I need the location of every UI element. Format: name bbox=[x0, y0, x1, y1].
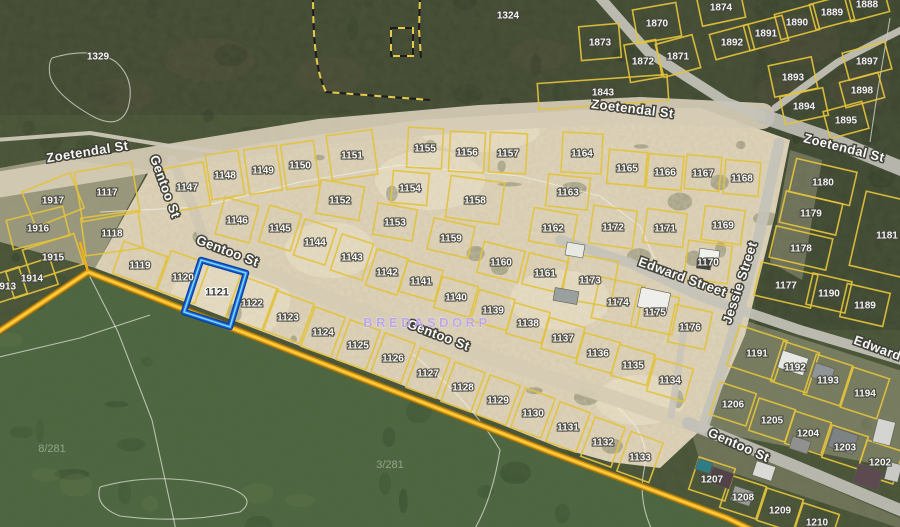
parcel-number-label[interactable]: 1145 bbox=[269, 224, 291, 235]
parcel-number-label[interactable]: 1138 bbox=[517, 319, 539, 330]
parcel-number-label[interactable]: 1123 bbox=[277, 313, 299, 324]
parcel-number-label[interactable]: 1154 bbox=[399, 184, 421, 195]
parcel-number-label[interactable]: 1897 bbox=[856, 57, 879, 68]
parcel-number-label[interactable]: 1148 bbox=[214, 171, 236, 182]
parcel-number-label[interactable]: 1151 bbox=[341, 151, 363, 162]
parcel-number-label[interactable]: 1898 bbox=[851, 86, 874, 97]
parcel-number-label[interactable]: 1178 bbox=[790, 244, 812, 255]
parcel-number-label[interactable]: 1130 bbox=[522, 409, 544, 420]
parcel-number-label[interactable]: 1914 bbox=[21, 274, 44, 285]
parcel-number-label[interactable]: 1173 bbox=[579, 276, 601, 287]
parcel-number-label[interactable]: 1891 bbox=[755, 29, 778, 40]
parcel-number-label[interactable]: 1122 bbox=[241, 299, 263, 310]
parcel-number-label[interactable]: 1160 bbox=[490, 258, 512, 269]
parcel-number-label[interactable]: 1127 bbox=[417, 369, 439, 380]
parcel-number-label[interactable]: 1137 bbox=[552, 334, 574, 345]
parcel-number-label[interactable]: 1872 bbox=[632, 57, 655, 68]
parcel-number-label[interactable]: 1205 bbox=[761, 416, 784, 427]
parcel-number-label[interactable]: 1165 bbox=[616, 164, 638, 175]
parcel-number-label[interactable]: 1126 bbox=[382, 354, 404, 365]
parcel-number-label[interactable]: 1895 bbox=[835, 116, 858, 127]
parcel-number-label[interactable]: 1208 bbox=[732, 493, 755, 504]
parcel-number-label[interactable]: 1144 bbox=[304, 238, 326, 249]
parcel-number-label[interactable]: 1159 bbox=[440, 234, 462, 245]
parcel-number-label[interactable]: 1917 bbox=[42, 196, 65, 207]
place-label-bredasdorp: BREDASDORP bbox=[363, 315, 490, 330]
parcel-number-label[interactable]: 1162 bbox=[542, 224, 564, 235]
parcel-number-label[interactable]: 1166 bbox=[654, 168, 676, 179]
parcel-number-label[interactable]: 1190 bbox=[818, 289, 840, 300]
parcel-number-label[interactable]: 1117 bbox=[96, 188, 118, 199]
parcel-number-label[interactable]: 1140 bbox=[445, 293, 467, 304]
parcel-number-label[interactable]: 1167 bbox=[692, 169, 714, 180]
parcel-number-label[interactable]: 1142 bbox=[376, 268, 398, 279]
parcel-number-label[interactable]: 1134 bbox=[659, 376, 681, 387]
parcel-number-label[interactable]: 1871 bbox=[667, 52, 690, 63]
parcel-number-label[interactable]: 1209 bbox=[769, 506, 792, 517]
parcel-number-label[interactable]: 1143 bbox=[341, 253, 363, 264]
parcel-number-label[interactable]: 1189 bbox=[854, 301, 876, 312]
parcel-number-label[interactable]: 1870 bbox=[646, 19, 669, 30]
parcel-number-label[interactable]: 1329 bbox=[87, 52, 110, 63]
parcel-number-label[interactable]: 1170 bbox=[697, 258, 719, 269]
farm-portion-label: 3/281 bbox=[376, 459, 404, 471]
parcel-number-label[interactable]: 1161 bbox=[534, 269, 556, 280]
parcel-number-label[interactable]: 1147 bbox=[176, 183, 198, 194]
parcel-number-label[interactable]: 1888 bbox=[856, 0, 879, 11]
parcel-number-label[interactable]: 1202 bbox=[869, 458, 892, 469]
parcel-number-label[interactable]: 1174 bbox=[607, 298, 629, 309]
parcel-number-label[interactable]: 1180 bbox=[812, 178, 834, 189]
parcel-number-label[interactable]: 1156 bbox=[456, 148, 478, 159]
building bbox=[565, 242, 585, 258]
parcel-number-label[interactable]: 1913 bbox=[0, 282, 17, 293]
parcel-number-label[interactable]: 1164 bbox=[571, 149, 593, 160]
parcel-number-label[interactable]: 1168 bbox=[731, 174, 753, 185]
parcel-number-label[interactable]: 1169 bbox=[712, 221, 734, 232]
parcel-number-label[interactable]: 1128 bbox=[452, 383, 474, 394]
parcel-number-label[interactable]: 1207 bbox=[701, 475, 724, 486]
parcel-number-label[interactable]: 1191 bbox=[746, 349, 768, 360]
parcel-number-label[interactable]: 1916 bbox=[27, 224, 50, 235]
parcel-number-label[interactable]: 1135 bbox=[622, 361, 644, 372]
parcel-number-label[interactable]: 1129 bbox=[487, 396, 509, 407]
building-roof bbox=[565, 242, 585, 258]
parcel-number-label[interactable]: 1206 bbox=[722, 400, 745, 411]
parcel-number-label[interactable]: 1889 bbox=[821, 8, 844, 19]
parcel-number-label[interactable]: 1193 bbox=[817, 376, 839, 387]
parcel-number-label[interactable]: 1133 bbox=[629, 453, 651, 464]
parcel-number-label[interactable]: 1915 bbox=[42, 253, 65, 264]
parcel-number-label[interactable]: 1124 bbox=[312, 328, 334, 339]
parcel-number-label[interactable]: 1194 bbox=[854, 389, 876, 400]
parcel-number-label[interactable]: 1146 bbox=[226, 216, 248, 227]
parcel-number-label[interactable]: 1873 bbox=[589, 38, 612, 49]
satellite-parcel-map[interactable]: 1329132418701873187418711872189218911890… bbox=[0, 0, 900, 527]
parcel-number-label[interactable]: 1894 bbox=[793, 102, 816, 113]
parcel-number-label[interactable]: 1153 bbox=[384, 218, 406, 229]
parcel-number-label[interactable]: 1171 bbox=[654, 224, 676, 235]
parcel-number-label[interactable]: 1210 bbox=[806, 518, 829, 527]
parcel-number-label[interactable]: 1172 bbox=[602, 223, 624, 234]
parcel-number-label[interactable]: 1892 bbox=[721, 38, 744, 49]
parcel-number-label[interactable]: 1179 bbox=[800, 209, 822, 220]
parcel-number-label[interactable]: 1120 bbox=[172, 273, 194, 284]
parcel-number-label[interactable]: 1324 bbox=[497, 11, 520, 22]
parcel-number-label[interactable]: 1163 bbox=[557, 188, 579, 199]
parcel-number-label[interactable]: 1204 bbox=[797, 429, 820, 440]
parcel-number-label[interactable]: 1119 bbox=[129, 261, 151, 272]
cadastral-map-canvas[interactable]: 1329132418701873187418711872189218911890… bbox=[0, 0, 900, 527]
parcel-number-label[interactable]: 1158 bbox=[464, 196, 486, 207]
farm-portion-label: 8/281 bbox=[38, 443, 66, 455]
parcel-number-label[interactable]: 1874 bbox=[710, 3, 733, 14]
parcel-number-label[interactable]: 1152 bbox=[329, 196, 351, 207]
parcel-number-label[interactable]: 1141 bbox=[410, 277, 432, 288]
parcel-number-label[interactable]: 1121 bbox=[205, 287, 229, 299]
parcel-number-label[interactable]: 1157 bbox=[497, 149, 519, 160]
parcel-number-label[interactable]: 1149 bbox=[252, 166, 274, 177]
parcel-number-label[interactable]: 1175 bbox=[644, 308, 666, 319]
parcel-number-label[interactable]: 1150 bbox=[289, 161, 311, 172]
parcel-number-label[interactable]: 1893 bbox=[782, 73, 805, 84]
parcel-number-label[interactable]: 1176 bbox=[679, 323, 701, 334]
parcel-number-label[interactable]: 1192 bbox=[784, 363, 806, 374]
parcel-number-label[interactable]: 1132 bbox=[592, 438, 614, 449]
parcel-number-label[interactable]: 1155 bbox=[414, 144, 436, 155]
parcel-number-label[interactable]: 1125 bbox=[347, 341, 369, 352]
parcel-number-label[interactable]: 1177 bbox=[775, 281, 797, 292]
parcel-number-label[interactable]: 1890 bbox=[786, 18, 809, 29]
parcel-number-label[interactable]: 1181 bbox=[876, 231, 898, 242]
parcel-number-label[interactable]: 1131 bbox=[557, 423, 579, 434]
parcel-number-label[interactable]: 1203 bbox=[834, 443, 857, 454]
parcel-number-label[interactable]: 1136 bbox=[587, 349, 609, 360]
parcel-number-label[interactable]: 1118 bbox=[101, 229, 123, 240]
